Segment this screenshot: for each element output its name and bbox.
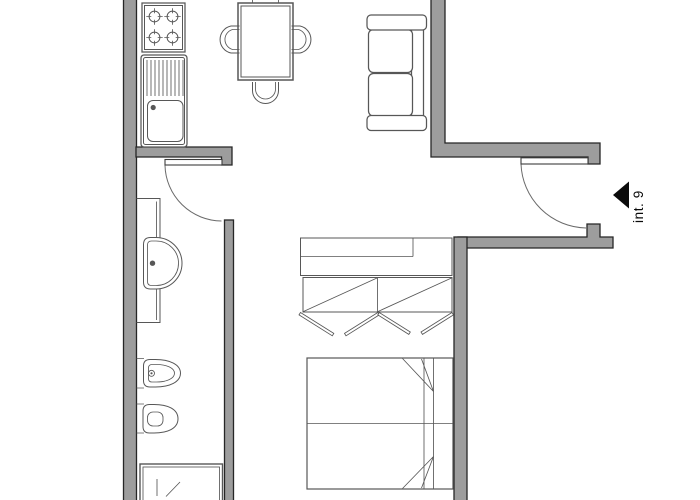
dining-area	[220, 0, 311, 104]
entrance-arrow-icon	[613, 182, 629, 209]
floorplan-svg	[0, 0, 700, 500]
shower-icon	[140, 464, 223, 500]
wardrobe-door-stroke	[378, 313, 411, 335]
kitchen	[141, 3, 187, 147]
wardrobe-door-stroke	[421, 313, 454, 335]
floor-plan: int. 9	[0, 0, 700, 500]
unit-label: int. 9	[631, 167, 647, 223]
bathroom	[137, 199, 223, 500]
sofa-cushion	[369, 74, 413, 117]
chair-bottom-icon	[253, 82, 279, 104]
bathroom-right-wall	[225, 220, 234, 500]
washbasin-icon	[144, 238, 183, 290]
wardrobe-door-stroke	[299, 313, 334, 336]
wardrobe-door-stroke	[345, 313, 380, 336]
entrance-door-leaf	[521, 158, 588, 164]
shelf-unit-icon	[301, 238, 453, 276]
chair-left-icon	[220, 26, 239, 53]
bedroom-right-wall	[454, 237, 467, 500]
dining-table-icon	[238, 3, 293, 80]
bedroom	[299, 238, 454, 489]
sofa-icon	[367, 15, 427, 131]
faucet-icon	[150, 372, 152, 374]
sofa-armrest	[367, 15, 427, 30]
stove-icon	[142, 3, 185, 52]
faucet-icon	[151, 105, 156, 110]
living-room-right-wall	[431, 0, 600, 164]
wardrobe-icon	[299, 278, 454, 336]
sofa-cushion	[369, 30, 413, 73]
entrance-door-swing-arc	[521, 164, 586, 228]
doors	[165, 158, 588, 228]
sofa-armrest	[367, 116, 427, 131]
faucet-icon	[150, 261, 155, 266]
sofa-backrest	[412, 26, 424, 119]
toilet-icon	[137, 404, 179, 433]
chair-right-icon	[292, 26, 311, 53]
left-exterior-wall	[124, 0, 137, 500]
bidet-icon	[137, 359, 181, 389]
bathroom-door-leaf	[165, 160, 222, 166]
bathroom-door-swing-arc	[165, 166, 222, 222]
kitchen-sink-icon	[141, 55, 187, 147]
double-bed-icon	[307, 358, 453, 489]
entry-bottom-wall	[458, 224, 613, 248]
